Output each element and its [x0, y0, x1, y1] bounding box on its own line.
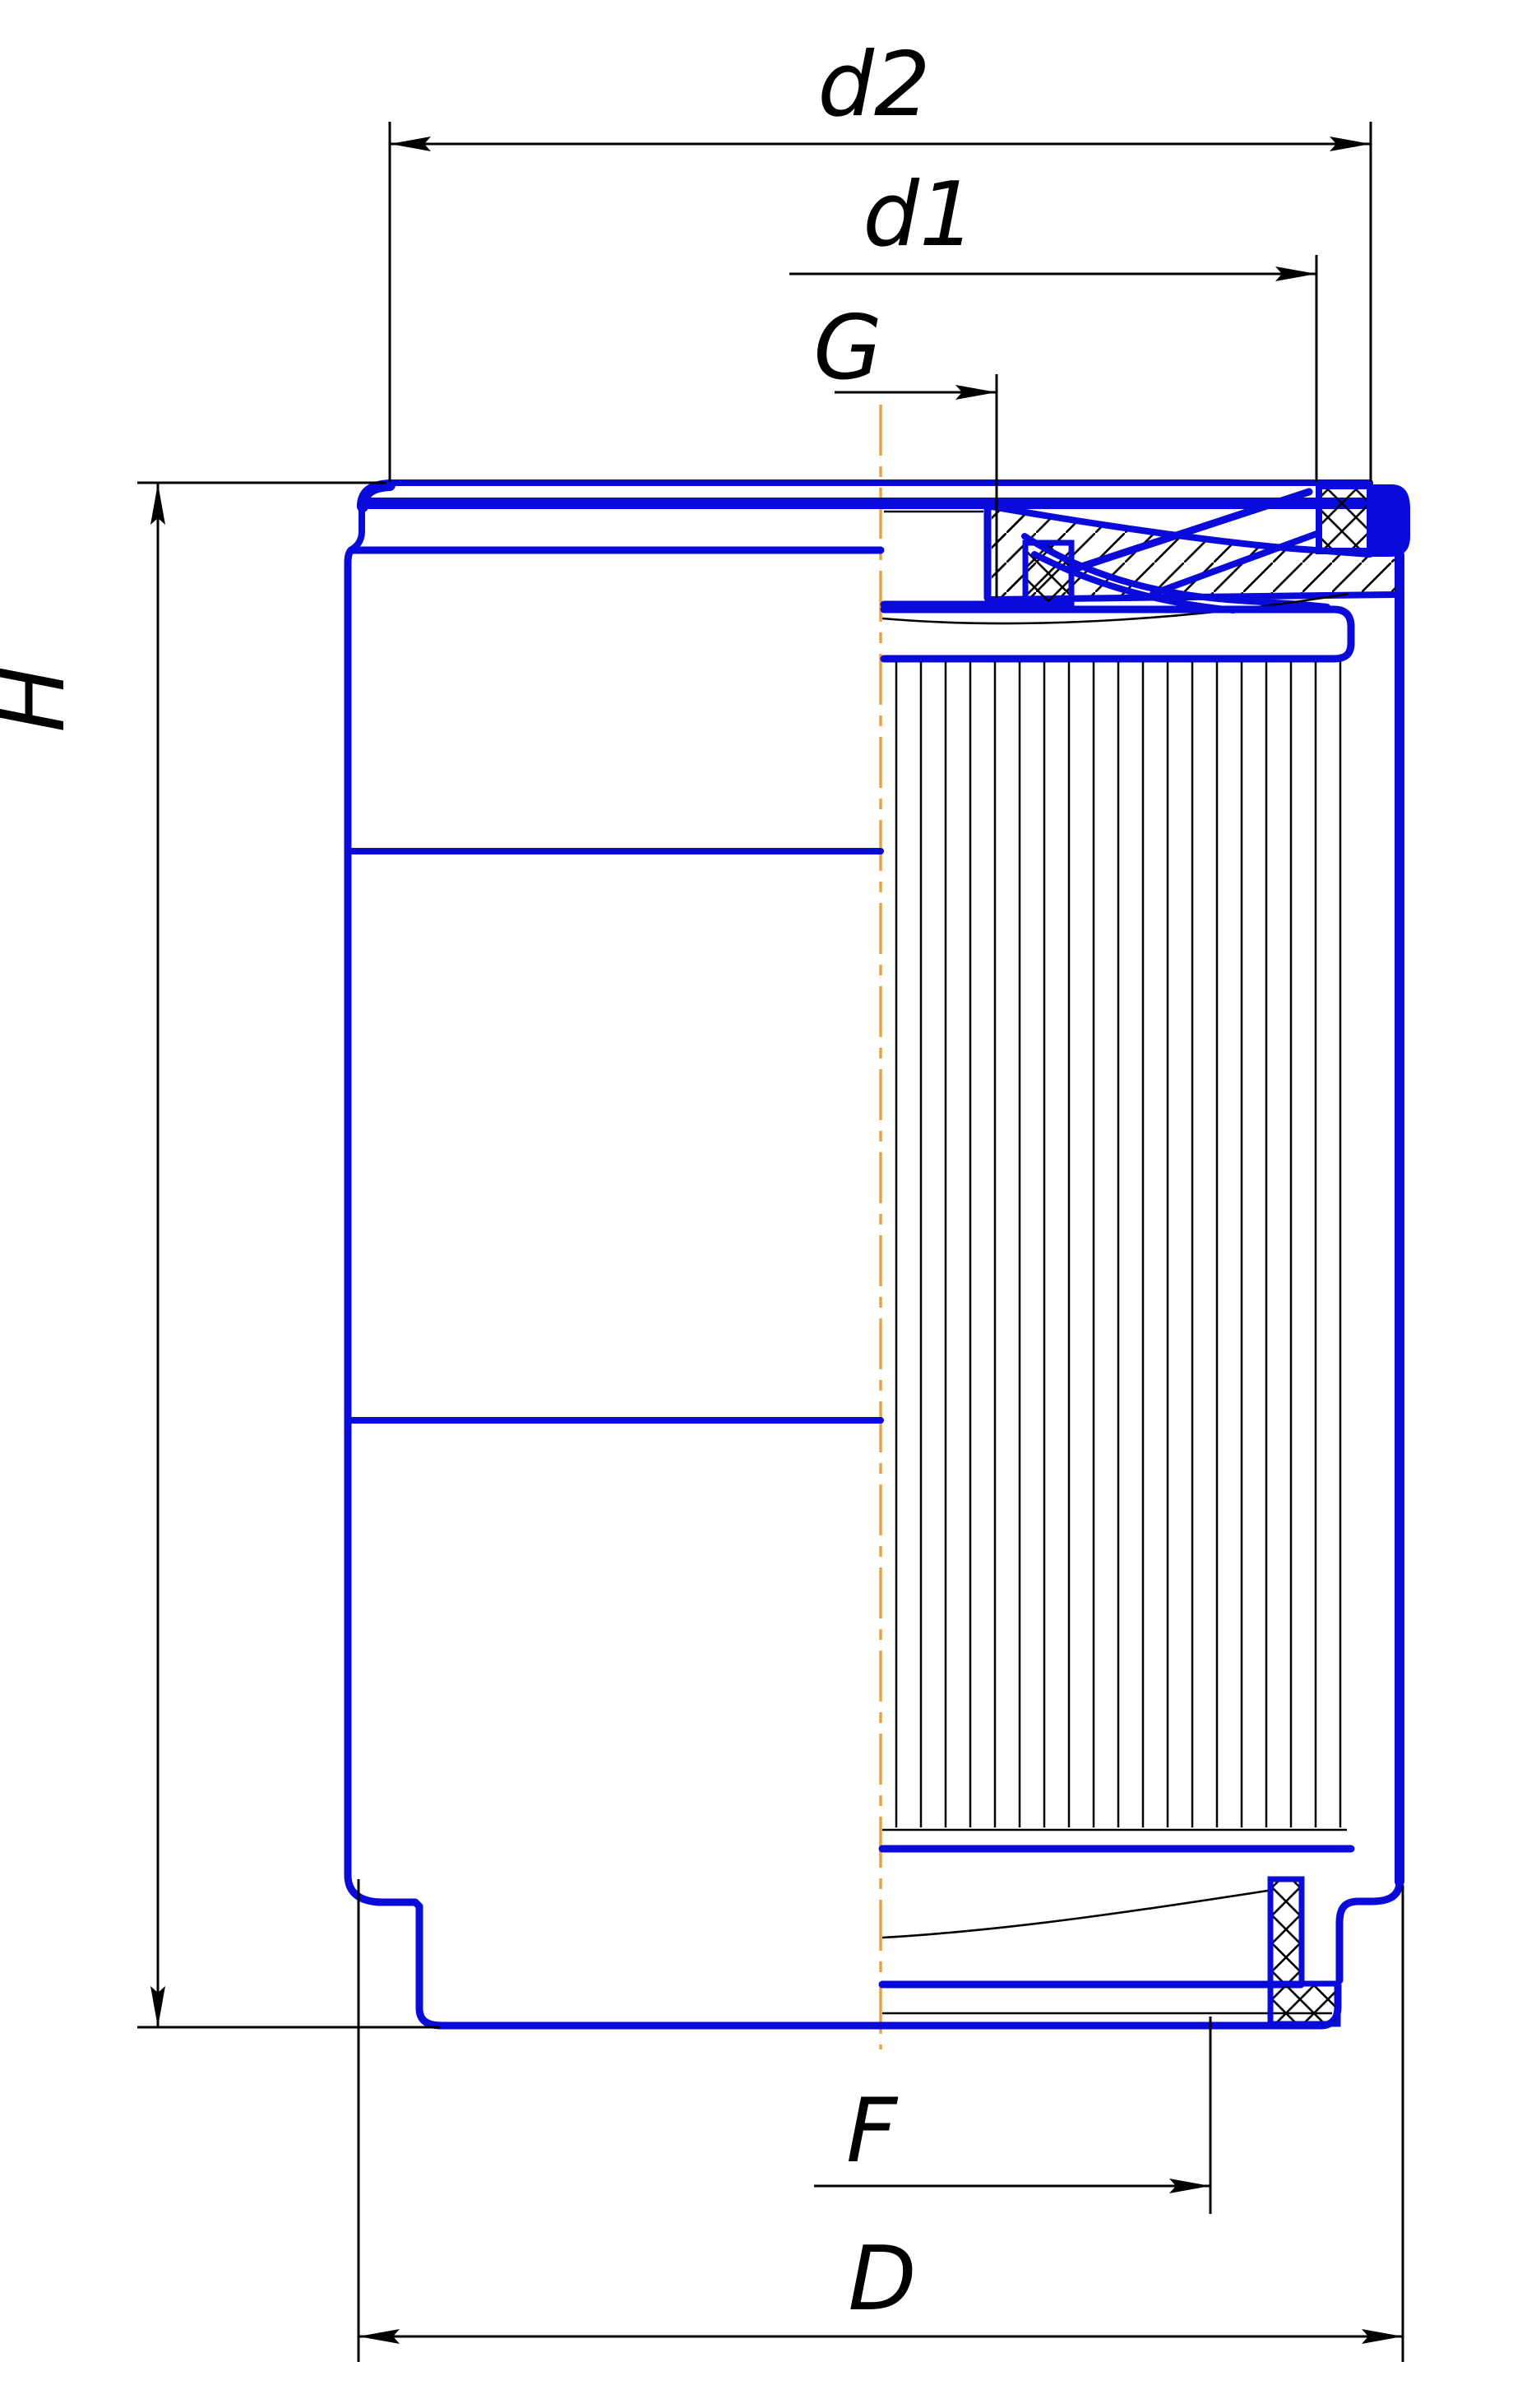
dim-label-g: G	[813, 297, 882, 400]
dim-label-h: H	[0, 665, 85, 732]
rolled-seam	[1370, 484, 1410, 557]
dim-label-f: F	[846, 2080, 899, 2183]
dimension-f: F	[814, 2017, 1210, 2214]
element-bottom-cap	[882, 1830, 1351, 1849]
dimension-height-h: H	[0, 483, 440, 2027]
filter-body-section	[882, 484, 1410, 2026]
drawing-canvas: d2 d1 G H F D	[0, 0, 1536, 2408]
filter-technical-drawing: d2 d1 G H F D	[0, 0, 1536, 2408]
bottom-seat-foot	[1270, 1984, 1338, 2024]
bottom-section	[882, 1879, 1338, 2024]
bottom-seat-strip	[1270, 1879, 1302, 1984]
gasket-section	[1319, 486, 1370, 551]
filter-pleats	[896, 661, 1340, 1827]
dim-label-d1: d1	[863, 164, 975, 266]
dim-label-d: D	[848, 2228, 916, 2331]
element-top-cap	[884, 609, 1351, 659]
dim-label-d2: d2	[817, 34, 930, 137]
